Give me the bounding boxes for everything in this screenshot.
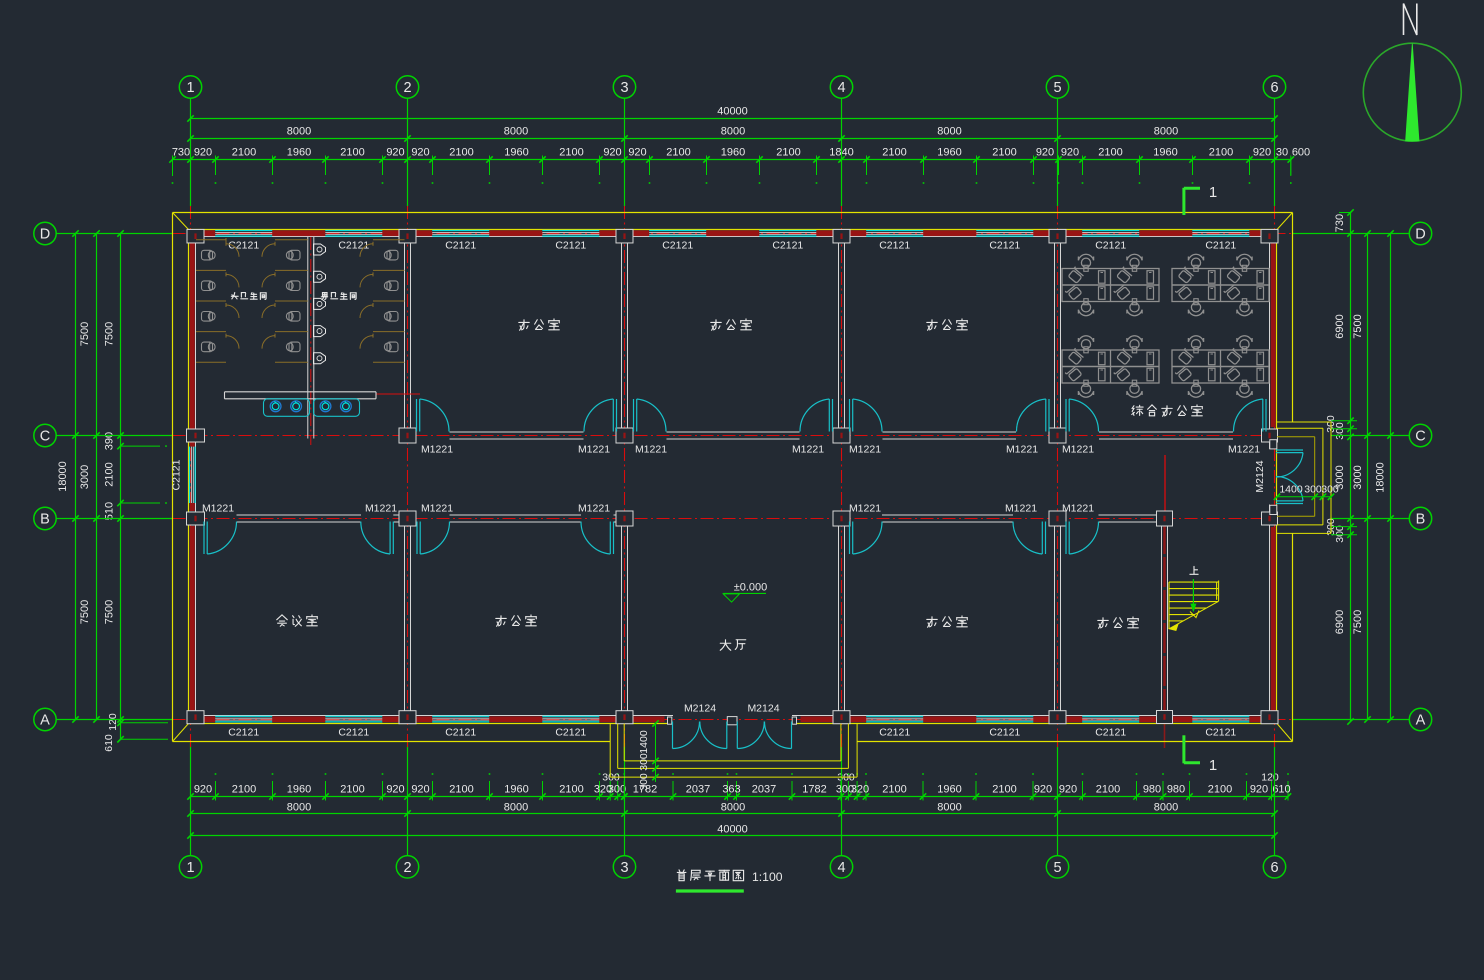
svg-text:2: 2 — [403, 860, 411, 876]
svg-text:1960: 1960 — [287, 147, 311, 159]
svg-text:300: 300 — [1304, 484, 1322, 496]
svg-text:M1221: M1221 — [202, 503, 234, 515]
svg-text:A: A — [40, 713, 50, 729]
svg-text:M1221: M1221 — [849, 503, 881, 515]
svg-text:1400: 1400 — [1279, 484, 1303, 496]
svg-text:2100: 2100 — [1098, 147, 1122, 159]
svg-text:8000: 8000 — [1154, 126, 1178, 138]
svg-text:2100: 2100 — [232, 147, 256, 159]
svg-text:M1221: M1221 — [578, 503, 610, 515]
svg-text:610: 610 — [103, 734, 115, 752]
svg-text:920: 920 — [1034, 784, 1052, 796]
svg-text:920: 920 — [411, 147, 429, 159]
svg-text:C: C — [40, 429, 50, 445]
svg-text:2100: 2100 — [340, 147, 364, 159]
svg-text:2100: 2100 — [776, 147, 800, 159]
svg-text:C2121: C2121 — [1205, 727, 1236, 739]
svg-text:920: 920 — [1253, 147, 1271, 159]
svg-text:8000: 8000 — [504, 802, 528, 814]
svg-text:M1221: M1221 — [365, 503, 397, 515]
svg-text:7500: 7500 — [104, 600, 116, 624]
svg-text:M1221: M1221 — [1062, 444, 1094, 456]
svg-text:920: 920 — [1250, 784, 1268, 796]
svg-text:C2121: C2121 — [338, 240, 369, 252]
svg-text:M2124: M2124 — [1254, 460, 1266, 492]
svg-text:C2121: C2121 — [1095, 727, 1126, 739]
svg-text:2100: 2100 — [992, 784, 1016, 796]
svg-text:M1221: M1221 — [635, 444, 667, 456]
svg-text:980: 980 — [1143, 784, 1161, 796]
svg-text:1: 1 — [1209, 184, 1217, 201]
svg-text:2100: 2100 — [104, 462, 116, 486]
svg-text:2100: 2100 — [449, 147, 473, 159]
svg-text:M1221: M1221 — [1005, 503, 1037, 515]
svg-text:7500: 7500 — [79, 322, 91, 346]
svg-text:C2121: C2121 — [1095, 240, 1126, 252]
svg-text:120: 120 — [107, 713, 119, 731]
svg-text:1960: 1960 — [504, 147, 528, 159]
svg-text:C2121: C2121 — [772, 240, 803, 252]
svg-text:M1221: M1221 — [792, 444, 824, 456]
svg-text:300: 300 — [638, 773, 650, 791]
svg-text:8000: 8000 — [721, 126, 745, 138]
svg-text:4: 4 — [837, 860, 845, 876]
svg-text:7500: 7500 — [1352, 610, 1364, 634]
svg-text:3000: 3000 — [79, 465, 91, 489]
svg-text:1960: 1960 — [721, 147, 745, 159]
svg-text:2037: 2037 — [686, 784, 710, 796]
svg-text:±0.000: ±0.000 — [734, 582, 768, 594]
svg-text:C2121: C2121 — [228, 727, 259, 739]
svg-text:390: 390 — [104, 432, 116, 450]
svg-text:2100: 2100 — [232, 784, 256, 796]
svg-text:D: D — [40, 227, 50, 243]
svg-text:1: 1 — [186, 80, 194, 96]
svg-text:M2124: M2124 — [684, 703, 716, 715]
svg-text:1960: 1960 — [504, 784, 528, 796]
svg-text:A: A — [1416, 713, 1426, 729]
svg-text:920: 920 — [628, 147, 646, 159]
svg-text:6900: 6900 — [1334, 610, 1346, 634]
svg-text:730: 730 — [1334, 214, 1346, 232]
svg-text:2100: 2100 — [992, 147, 1016, 159]
svg-text:2100: 2100 — [340, 784, 364, 796]
svg-text:8000: 8000 — [721, 802, 745, 814]
svg-text:920: 920 — [1036, 147, 1054, 159]
svg-text:6: 6 — [1270, 860, 1278, 876]
svg-text:2100: 2100 — [1096, 784, 1120, 796]
svg-text:300: 300 — [1334, 422, 1346, 440]
svg-text:1960: 1960 — [287, 784, 311, 796]
svg-text:8000: 8000 — [937, 802, 961, 814]
svg-text:920: 920 — [194, 147, 212, 159]
svg-text:18000: 18000 — [57, 461, 69, 492]
svg-text:M1221: M1221 — [1062, 503, 1094, 515]
svg-text:M1221: M1221 — [578, 444, 610, 456]
svg-text:40000: 40000 — [717, 824, 748, 836]
svg-text:C2121: C2121 — [445, 727, 476, 739]
svg-text:C2121: C2121 — [879, 240, 910, 252]
svg-text:C2121: C2121 — [555, 727, 586, 739]
svg-text:1: 1 — [1209, 757, 1217, 774]
svg-text:B: B — [1416, 512, 1426, 528]
svg-text:300: 300 — [1334, 525, 1346, 543]
svg-text:5: 5 — [1053, 80, 1061, 96]
svg-text:C2121: C2121 — [555, 240, 586, 252]
svg-text:120: 120 — [1261, 772, 1279, 784]
svg-text:320: 320 — [851, 784, 869, 796]
svg-text:C: C — [1415, 429, 1425, 445]
svg-text:300: 300 — [638, 753, 650, 771]
svg-text:2100: 2100 — [559, 784, 583, 796]
svg-text:2: 2 — [403, 80, 411, 96]
svg-text:D: D — [1415, 227, 1425, 243]
svg-text:7500: 7500 — [1352, 314, 1364, 338]
svg-text:4: 4 — [837, 80, 845, 96]
svg-text:1960: 1960 — [937, 147, 961, 159]
svg-text:5: 5 — [1053, 860, 1061, 876]
svg-text:920: 920 — [386, 147, 404, 159]
svg-text:2100: 2100 — [1209, 147, 1233, 159]
svg-text:8000: 8000 — [287, 126, 311, 138]
svg-text:1: 1 — [186, 860, 194, 876]
svg-text:2100: 2100 — [666, 147, 690, 159]
svg-text:1960: 1960 — [1153, 147, 1177, 159]
svg-text:2100: 2100 — [882, 784, 906, 796]
svg-text:363: 363 — [722, 784, 740, 796]
svg-text:980: 980 — [1167, 784, 1185, 796]
svg-text:3000: 3000 — [1352, 465, 1364, 489]
svg-text:B: B — [40, 512, 50, 528]
svg-text:M1221: M1221 — [849, 444, 881, 456]
svg-text:920: 920 — [386, 784, 404, 796]
svg-text:M1221: M1221 — [1006, 444, 1038, 456]
svg-text:C2121: C2121 — [445, 240, 476, 252]
svg-text:3: 3 — [620, 860, 628, 876]
svg-text:8000: 8000 — [504, 126, 528, 138]
svg-text:M1221: M1221 — [1228, 444, 1260, 456]
svg-text:2100: 2100 — [559, 147, 583, 159]
svg-text:300: 300 — [1321, 484, 1339, 496]
svg-text:6900: 6900 — [1334, 314, 1346, 338]
svg-text:920: 920 — [603, 147, 621, 159]
svg-text:7500: 7500 — [79, 600, 91, 624]
svg-text:2037: 2037 — [752, 784, 776, 796]
svg-text:730: 730 — [172, 147, 190, 159]
svg-text:3: 3 — [620, 80, 628, 96]
svg-text:510: 510 — [104, 502, 116, 520]
svg-text:1782: 1782 — [802, 784, 826, 796]
svg-text:1400: 1400 — [638, 730, 650, 754]
svg-text:920: 920 — [1059, 784, 1077, 796]
svg-text:300: 300 — [608, 784, 626, 796]
svg-text:C2121: C2121 — [171, 459, 183, 490]
svg-text:6: 6 — [1270, 80, 1278, 96]
svg-text:1:100: 1:100 — [752, 870, 783, 884]
svg-text:M1221: M1221 — [421, 503, 453, 515]
svg-text:C2121: C2121 — [989, 727, 1020, 739]
svg-text:1960: 1960 — [937, 784, 961, 796]
svg-text:2100: 2100 — [882, 147, 906, 159]
svg-text:40000: 40000 — [717, 106, 748, 118]
svg-text:M2124: M2124 — [747, 703, 779, 715]
svg-text:8000: 8000 — [1154, 802, 1178, 814]
svg-text:C2121: C2121 — [1205, 240, 1236, 252]
svg-text:M1221: M1221 — [421, 444, 453, 456]
svg-text:920: 920 — [194, 784, 212, 796]
svg-text:8000: 8000 — [937, 126, 961, 138]
svg-text:18000: 18000 — [1375, 462, 1387, 493]
svg-text:30: 30 — [1276, 147, 1288, 159]
svg-text:7500: 7500 — [104, 322, 116, 346]
svg-text:920: 920 — [411, 784, 429, 796]
svg-text:C2121: C2121 — [338, 727, 369, 739]
svg-text:C2121: C2121 — [662, 240, 693, 252]
svg-text:C2121: C2121 — [879, 727, 910, 739]
svg-text:920: 920 — [1061, 147, 1079, 159]
svg-text:2100: 2100 — [449, 784, 473, 796]
svg-text:2100: 2100 — [1208, 784, 1232, 796]
svg-text:600: 600 — [1292, 147, 1310, 159]
svg-text:C2121: C2121 — [989, 240, 1020, 252]
svg-text:8000: 8000 — [287, 802, 311, 814]
